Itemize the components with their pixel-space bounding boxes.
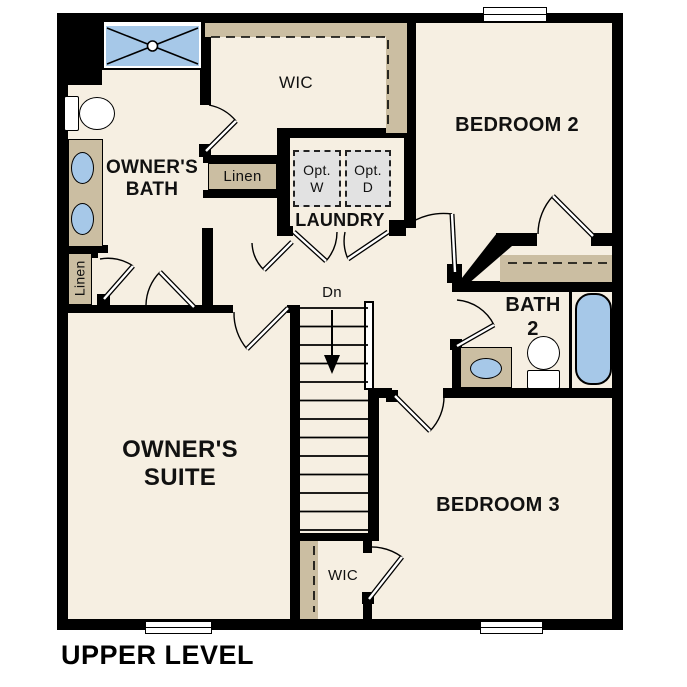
room-label-bedroom2: BEDROOM 2 [417,114,617,138]
room-label-wic-owners: WIC [246,73,346,93]
room-label-wic-bedroom3: WIC [316,567,370,585]
stairs [300,308,368,530]
room-label-owners-bath: OWNER'S BATH [82,157,222,202]
plan-title: UPPER LEVEL [61,640,254,671]
floor-plan: Opt. W Opt. D [0,0,687,687]
room-label-bedroom3: BEDROOM 3 [398,494,598,518]
shower-glass-icon [107,28,198,64]
closet-label-linen-bath: Linen [72,246,89,310]
closet-label-linen-hall: Linen [208,168,277,186]
room-label-owners-suite: OWNER'S SUITE [80,436,280,493]
room-label-laundry: LAUNDRY [270,210,410,231]
room-label-bath2: BATH 2 [483,294,583,341]
angled-wall [458,233,512,284]
stairs-direction-label: Dn [316,284,348,302]
